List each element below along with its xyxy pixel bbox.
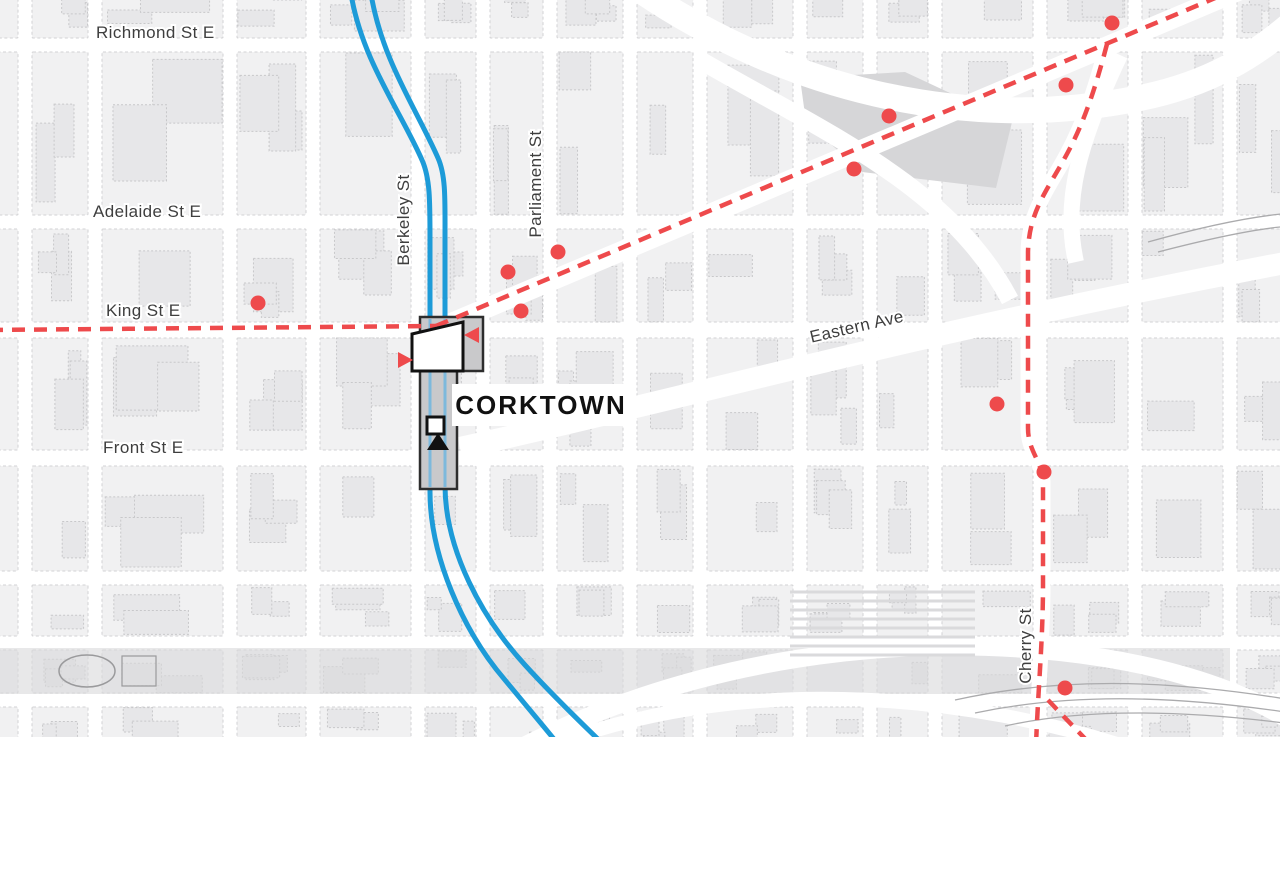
building-footprint: [880, 394, 894, 428]
building-footprint: [250, 400, 274, 430]
city-block: [0, 52, 18, 215]
building-footprint: [493, 129, 507, 181]
building-footprint: [1242, 289, 1260, 321]
building-footprint: [899, 0, 928, 16]
building-footprint: [132, 721, 178, 737]
building-footprint: [139, 251, 190, 306]
building-footprint: [343, 383, 372, 429]
street-name-label: Berkeley St: [394, 174, 413, 265]
city-block: [1142, 338, 1223, 450]
building-footprint: [650, 105, 666, 154]
streetcar-stop-marker: [501, 265, 516, 280]
building-footprint: [251, 474, 273, 519]
building-footprint: [505, 0, 526, 2]
city-block: [0, 466, 18, 571]
building-footprint: [365, 612, 388, 626]
building-footprint: [495, 591, 525, 620]
building-footprint: [811, 371, 836, 415]
street-name-label: King St E: [106, 301, 180, 320]
building-footprint: [327, 709, 364, 728]
streetcar-stop-marker: [990, 397, 1005, 412]
building-footprint: [841, 408, 857, 444]
building-footprint: [278, 714, 299, 727]
building-footprint: [560, 147, 578, 213]
streetcar-stop-marker: [514, 304, 529, 319]
building-footprint: [463, 721, 474, 737]
building-footprint: [275, 371, 303, 401]
building-footprint: [579, 590, 604, 616]
building-footprint: [252, 588, 272, 615]
building-footprint: [1246, 669, 1274, 689]
building-footprint: [1272, 131, 1280, 193]
building-footprint: [140, 0, 209, 12]
streetcar-stop-marker: [1105, 16, 1120, 31]
building-footprint: [512, 3, 528, 18]
building-footprint: [1074, 361, 1114, 423]
emergency-exit-building: [427, 417, 444, 434]
building-footprint: [38, 252, 56, 273]
building-footprint: [1054, 515, 1088, 562]
building-footprint: [1263, 382, 1280, 440]
streetcar-stop-marker: [1059, 78, 1074, 93]
building-footprint: [1144, 138, 1164, 211]
building-footprint: [51, 615, 84, 629]
building-footprint: [1237, 471, 1262, 509]
building-footprint: [666, 263, 692, 290]
building-footprint: [709, 255, 753, 277]
streetcar-stop-marker: [1037, 465, 1052, 480]
street-name-label: Front St E: [103, 438, 184, 457]
city-block: [0, 338, 18, 450]
building-footprint: [1271, 598, 1280, 625]
building-footprint: [1239, 85, 1255, 153]
building-footprint: [723, 0, 751, 27]
streetcar-stop-marker: [847, 162, 862, 177]
building-footprint: [1082, 0, 1123, 17]
building-footprint: [446, 80, 460, 153]
building-footprint: [1156, 500, 1201, 557]
street-name-label: Cherry St: [1016, 608, 1035, 683]
city-block: [877, 707, 928, 737]
building-footprint: [62, 522, 85, 558]
street-name-label: Richmond St E: [96, 23, 215, 42]
building-footprint: [736, 726, 757, 737]
building-footprint: [511, 475, 537, 536]
building-footprint: [984, 0, 1021, 20]
building-footprint: [837, 720, 858, 733]
station-name-label: CORKTOWN: [455, 390, 627, 420]
building-footprint: [113, 105, 166, 181]
streetcar-stop-marker: [251, 296, 266, 311]
building-footprint: [1165, 592, 1209, 607]
building-footprint: [971, 532, 1011, 565]
building-footprint: [238, 10, 274, 26]
building-footprint: [444, 0, 462, 20]
city-block: [0, 585, 18, 636]
building-footprint: [1089, 614, 1116, 632]
building-footprint: [726, 413, 758, 450]
building-footprint: [961, 338, 998, 386]
building-footprint: [895, 481, 907, 504]
city-block: [707, 466, 793, 571]
building-footprint: [330, 5, 351, 25]
streetcar-stop-marker: [882, 109, 897, 124]
building-footprint: [43, 724, 57, 737]
city-block: [0, 0, 18, 38]
building-footprint: [756, 714, 777, 732]
building-footprint: [346, 53, 392, 136]
building-footprint: [595, 266, 617, 322]
building-footprint: [889, 509, 911, 553]
building-footprint: [1054, 605, 1074, 635]
building-footprint: [583, 505, 608, 562]
building-footprint: [343, 477, 374, 517]
building-footprint: [559, 52, 591, 90]
building-footprint: [585, 0, 609, 14]
legend-footer: Corktown Station Tunnelled Streetcar Lin…: [0, 737, 1280, 873]
building-footprint: [124, 611, 189, 635]
building-footprint: [62, 0, 86, 14]
building-footprint: [1160, 715, 1187, 731]
building-footprint: [560, 474, 575, 505]
street-name-label: Adelaide St E: [93, 202, 201, 221]
streetcar-stop-marker: [551, 245, 566, 260]
building-footprint: [819, 236, 835, 280]
building-footprint: [334, 230, 375, 259]
building-footprint: [657, 469, 680, 512]
building-footprint: [752, 0, 773, 24]
building-footprint: [337, 338, 388, 386]
city-block: [0, 229, 18, 322]
building-footprint: [54, 104, 74, 157]
building-footprint: [332, 588, 383, 604]
building-footprint: [121, 517, 182, 567]
building-footprint: [427, 713, 456, 737]
building-footprint: [1148, 401, 1195, 430]
building-footprint: [158, 362, 199, 411]
building-footprint: [55, 379, 83, 430]
building-footprint: [813, 0, 843, 17]
building-footprint: [829, 490, 851, 529]
building-footprint: [890, 717, 901, 737]
building-footprint: [240, 75, 279, 131]
building-footprint: [1242, 5, 1262, 33]
building-footprint: [657, 606, 689, 633]
map-canvas: CORKTOWNRichmond St EAdelaide St EKing S…: [0, 0, 1280, 737]
building-footprint: [270, 602, 289, 617]
building-footprint: [427, 597, 441, 609]
building-footprint: [648, 278, 663, 322]
building-footprint: [1253, 509, 1280, 569]
building-footprint: [742, 606, 778, 632]
streetcar-stop-marker: [1058, 681, 1073, 696]
building-footprint: [971, 473, 1005, 529]
city-block: [0, 707, 18, 737]
building-footprint: [756, 502, 777, 531]
corktown-station-map-page: CORKTOWNRichmond St EAdelaide St EKing S…: [0, 0, 1280, 873]
street-name-label: Parliament St: [526, 130, 545, 237]
building-footprint: [983, 591, 1030, 607]
building-footprint: [36, 123, 55, 202]
